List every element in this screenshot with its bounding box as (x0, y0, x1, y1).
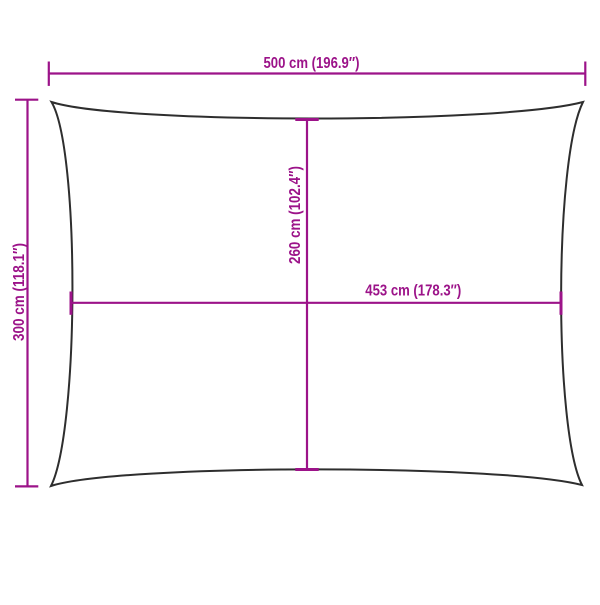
svg-text:500 cm (196.9″): 500 cm (196.9″) (264, 55, 360, 72)
svg-text:300 cm (118.1″): 300 cm (118.1″) (11, 243, 28, 341)
svg-text:453 cm (178.3″): 453 cm (178.3″) (365, 283, 461, 300)
svg-text:260 cm (102.4″): 260 cm (102.4″) (287, 166, 304, 264)
